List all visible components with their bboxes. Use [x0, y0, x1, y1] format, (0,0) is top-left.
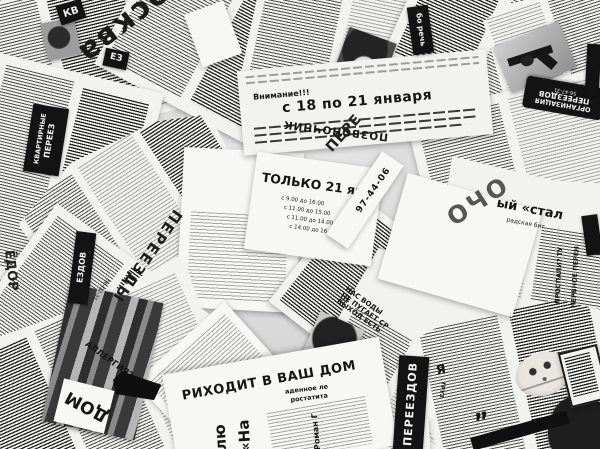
black-edge-chip [585, 44, 600, 97]
banner-line: ПЕРЕЕЗДОВ [402, 362, 420, 447]
chip-label: ЕЗ [109, 53, 123, 65]
banner-pereezdov-vertical: ПЕРЕЕЗДОВ [393, 355, 430, 449]
headline-prihodit-v-vash-dom: РИХОДИТ В ВАШ ДОМ [181, 359, 357, 404]
handgun-grip [536, 49, 558, 70]
newspaper-collage-photo: Внимание!!! с 18 по 21 января ПОЗВОНОЧНИ… [0, 0, 600, 449]
text-lyu: лю [211, 413, 230, 449]
banner-line: ЕЗДОВ [76, 252, 89, 284]
text-na-quote: «На [234, 405, 254, 449]
banner-line: бо речь [414, 13, 427, 47]
chip-label: КВ [62, 4, 80, 19]
newsprint-column [564, 352, 599, 397]
headline-dom-upside-down: ДОМ [62, 387, 112, 425]
